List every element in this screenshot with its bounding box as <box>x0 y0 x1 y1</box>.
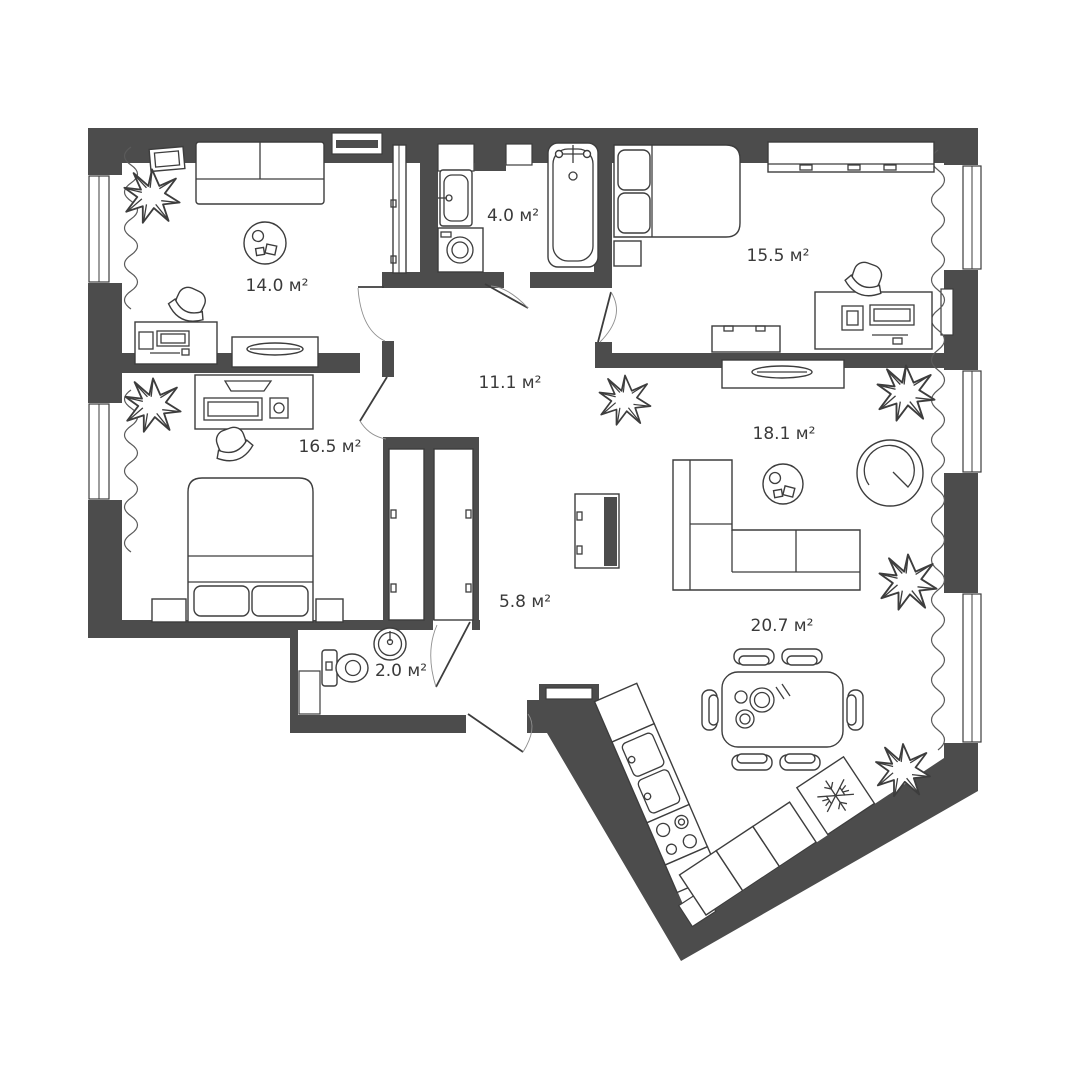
vent-shaft-2 <box>506 144 532 165</box>
area-label-room14: 14.0 м² <box>246 276 309 296</box>
closet-side-right <box>473 449 479 620</box>
dining-chair <box>732 754 772 770</box>
nightstand-right <box>316 599 343 622</box>
dining-chair <box>780 754 820 770</box>
wc-sink <box>374 628 406 660</box>
dining-chair <box>734 649 774 665</box>
closet-side-left <box>383 449 389 620</box>
desk <box>135 322 217 364</box>
area-label-kitchen: 20.7 м² <box>751 616 814 636</box>
entry-niche-inset <box>546 688 592 699</box>
dining-chair <box>782 649 822 665</box>
bed <box>188 478 313 622</box>
wall-hall-top <box>382 272 504 288</box>
tv-unit <box>575 494 619 568</box>
desk <box>815 292 932 349</box>
area-label-bedroom16: 16.5 м² <box>299 437 362 457</box>
area-label-hallway: 11.1 м² <box>479 373 542 393</box>
dining-chair <box>847 690 863 730</box>
wardrobe <box>768 142 934 172</box>
entrance-opening <box>466 714 527 733</box>
closet-header <box>383 437 479 449</box>
round-armchair <box>857 440 923 506</box>
sofa <box>196 142 324 204</box>
wall-bedroom15-jamb <box>595 342 612 354</box>
dining-chair <box>702 690 718 730</box>
wall-tv <box>332 133 382 154</box>
tv-cabinet <box>712 326 780 352</box>
closet-divider <box>424 449 434 620</box>
wall-wc-jamb <box>472 620 480 630</box>
vent-shaft-1 <box>438 144 474 171</box>
wall-stub-bath <box>474 163 506 171</box>
nightstand <box>614 241 641 266</box>
desk <box>195 375 313 429</box>
side-table <box>244 222 286 264</box>
area-label-wc: 2.0 м² <box>375 661 427 681</box>
area-label-bathroom: 4.0 м² <box>487 206 539 226</box>
bed <box>614 145 740 237</box>
entry-block <box>527 700 607 733</box>
floor-plan: 14.0 м² 4.0 м² 15.5 м² 11.1 м² 16.5 м² 1… <box>0 0 1080 1080</box>
area-label-living: 18.1 м² <box>753 424 816 444</box>
area-label-bedroom15: 15.5 м² <box>747 246 810 266</box>
wc-niche <box>299 671 320 714</box>
floor-plan-page: 14.0 м² 4.0 м² 15.5 м² 11.1 м² 16.5 м² 1… <box>0 0 1080 1080</box>
tv-stand <box>722 360 844 388</box>
wardrobe-niche <box>391 145 406 273</box>
picture-frame <box>149 147 185 172</box>
wall-stub <box>382 341 394 377</box>
nightstand-left <box>152 599 186 622</box>
dining-table <box>722 672 843 747</box>
area-label-corridor: 5.8 м² <box>499 592 551 612</box>
wall-bathroom-left <box>420 163 438 288</box>
coffee-table <box>763 464 803 504</box>
tv-console <box>232 337 318 367</box>
bathtub <box>548 143 598 267</box>
bathroom-sink <box>438 170 472 226</box>
washing-machine <box>438 228 483 272</box>
